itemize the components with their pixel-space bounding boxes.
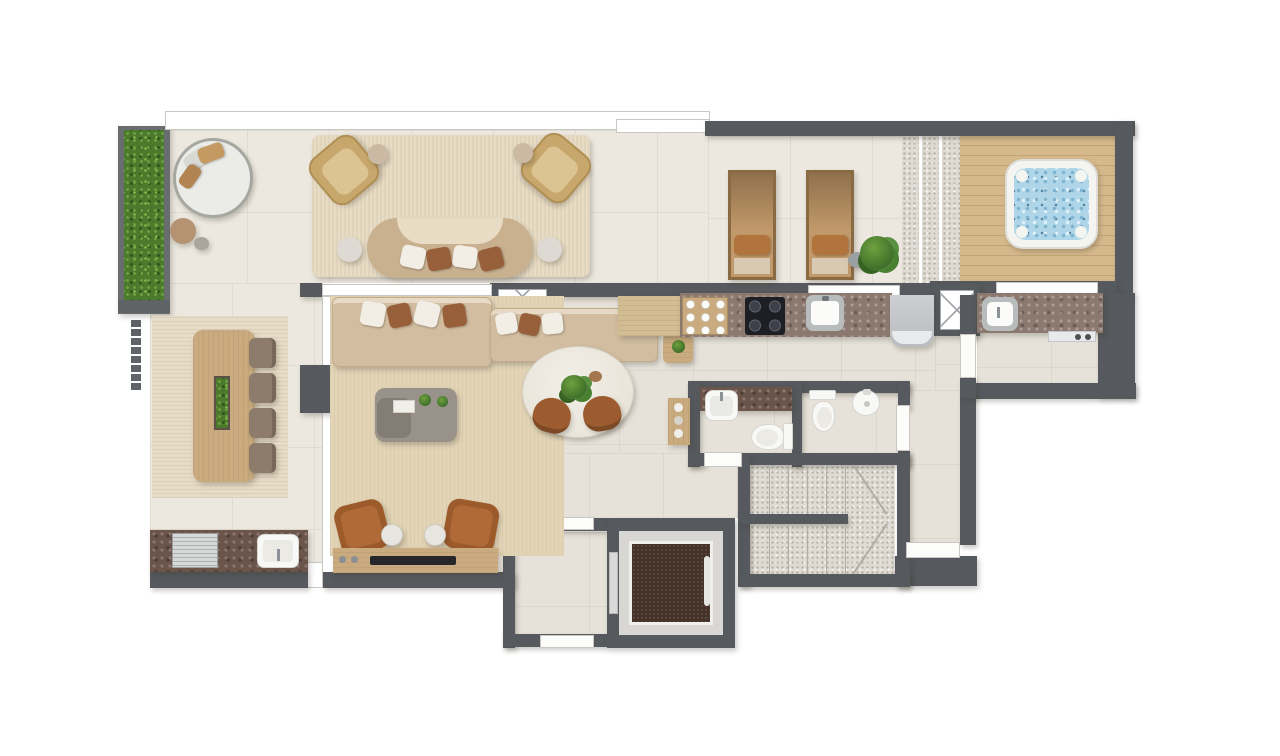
kitchen-sink-faucet — [822, 296, 829, 301]
wall-stub-left — [300, 283, 322, 297]
vanity-sink — [705, 390, 738, 421]
bidet-drain — [864, 401, 870, 407]
kitchen-sink-basin — [811, 301, 839, 325]
toilet-1-seat — [756, 429, 778, 446]
louver-mark — [131, 383, 141, 390]
sofa-pillow — [494, 311, 518, 335]
l-sofa-left — [332, 297, 492, 367]
tv-console — [333, 548, 498, 573]
wall-living-bottom — [323, 572, 515, 588]
glass-door-edge — [306, 562, 323, 588]
bidet — [852, 390, 880, 416]
round-daybed — [173, 138, 253, 218]
armchair-seat — [448, 504, 494, 548]
railing-step — [616, 119, 710, 133]
tv-screen — [370, 556, 456, 565]
jacuzzi-jet — [1016, 170, 1028, 182]
curved-sofa — [367, 218, 533, 278]
wall-stairs-mid — [738, 514, 848, 524]
green-wall-hedge — [124, 130, 164, 307]
sofa-pillow — [386, 302, 413, 329]
speaker-dot — [339, 556, 346, 563]
toilet-2-bowl — [812, 401, 835, 432]
toilet-2-seat — [817, 407, 832, 428]
green-wall-cap — [118, 300, 170, 313]
sofa-pillow — [541, 312, 564, 335]
outdoor-dining-chair — [249, 408, 276, 438]
laundry-sink-basin — [987, 302, 1013, 326]
toilet-1-tank — [783, 423, 793, 450]
jacuzzi-jet — [1075, 170, 1087, 182]
louver-mark — [131, 320, 141, 327]
outdoor-dining-chair — [249, 338, 276, 368]
wall-stairs-right — [897, 453, 910, 587]
appliance-knob — [1085, 334, 1091, 340]
sofa-pillow — [412, 299, 441, 328]
louver-mark — [131, 356, 141, 363]
outdoor-dining-chair — [249, 443, 276, 473]
fridge-front — [892, 331, 932, 344]
louver-mark — [131, 347, 141, 354]
door-vestibule-bottom — [540, 635, 594, 648]
wall-laundry-bottom — [963, 383, 1136, 399]
side-table-plant — [672, 340, 685, 353]
gravel-band — [922, 136, 939, 283]
round-side-table-1 — [381, 524, 403, 546]
lounger-backrest-shade — [731, 173, 773, 231]
louver-mark — [131, 338, 141, 345]
stairs-upper-flight — [750, 465, 850, 514]
bidet-faucet — [863, 389, 871, 395]
wall-outdoor-bottom — [150, 572, 308, 588]
wall-laundry-div-lower — [960, 376, 976, 398]
wall-stairs-bottom — [738, 574, 910, 587]
planter-greens — [216, 378, 228, 428]
round-side-table-2 — [424, 524, 446, 546]
stairs-lower-flight — [750, 524, 850, 574]
appliance-knob — [1075, 334, 1081, 340]
lounger-towel — [734, 258, 770, 274]
laundry-appliance — [1048, 331, 1096, 342]
stairs-upper-winders — [845, 465, 895, 514]
louver-mark — [131, 374, 141, 381]
sofa-pillow — [477, 245, 506, 272]
fridge — [890, 295, 934, 347]
leather-armchair-right — [441, 497, 501, 555]
shelf-jar — [674, 403, 683, 412]
sofa-pillow — [359, 300, 387, 328]
wall-left-block — [300, 365, 334, 413]
shelf-jar — [674, 416, 683, 425]
coffee-table-plant — [437, 396, 448, 407]
toilet-1-bowl — [751, 424, 784, 450]
jacuzzi-jet — [1016, 226, 1028, 238]
laundry-sink-faucet — [997, 307, 1000, 318]
louver-mark — [131, 365, 141, 372]
kitchen-cabinet — [618, 296, 680, 336]
long-dining-table — [193, 330, 255, 482]
curved-sofa-opening — [397, 218, 503, 244]
wall-stairs-top — [738, 453, 910, 465]
coffee-table-plant — [419, 394, 431, 406]
sun-lounger-1 — [728, 170, 776, 280]
armchair-seat — [339, 504, 385, 550]
bar-shelf — [668, 398, 690, 445]
cooktop — [745, 297, 785, 335]
wall-right-lower — [1098, 293, 1135, 397]
sofa-pillow — [452, 244, 479, 269]
jacuzzi — [1005, 159, 1098, 249]
coffee-table — [375, 388, 457, 442]
door-laundry — [960, 334, 976, 378]
wicker-seat — [528, 143, 582, 197]
wall-top-right — [705, 121, 1135, 136]
kitchen-sink — [806, 295, 844, 331]
stone-side-table-left — [337, 237, 362, 262]
elevator-sliding-door — [609, 552, 618, 614]
monstera-plant-deck — [860, 236, 894, 270]
outdoor-sink-faucet — [277, 549, 280, 561]
sofa-side-table — [663, 334, 693, 363]
daybed-pillow — [196, 141, 226, 165]
wall-corridor-right — [960, 395, 976, 545]
speaker-dot — [351, 556, 358, 563]
lounger-pillow — [812, 235, 848, 255]
side-table-small-right — [513, 143, 533, 163]
table-planter — [214, 376, 230, 430]
floor-plan — [0, 0, 1280, 756]
sun-lounger-2 — [806, 170, 854, 280]
gravel-band — [942, 136, 960, 283]
table-dish — [589, 371, 602, 382]
pebble-decor — [194, 237, 209, 250]
sofa-pillow — [425, 246, 452, 272]
gravel-bands — [902, 136, 960, 283]
wicker-seat — [319, 145, 373, 199]
sofa-pillow — [442, 303, 468, 329]
lounger-backrest-shade — [809, 173, 851, 231]
pouf — [170, 218, 196, 244]
coffee-station — [682, 297, 728, 335]
lounger-pillow — [734, 235, 770, 255]
coffee-table-book — [393, 400, 415, 413]
louver-mark — [131, 329, 141, 336]
door-bathroom2 — [896, 405, 910, 451]
stairs-lower-winders — [845, 524, 895, 574]
elevator-handrail — [704, 556, 710, 606]
door-hall — [906, 542, 960, 558]
side-table-small-left — [368, 144, 388, 164]
bbq-grill — [172, 533, 218, 568]
lounger-towel — [812, 258, 848, 274]
shelf-jar — [674, 429, 683, 438]
stone-side-table-right — [537, 237, 562, 262]
sofa-pillow — [399, 244, 427, 271]
wall-right — [1115, 121, 1133, 297]
outdoor-sink — [257, 534, 299, 568]
door-bathroom1 — [704, 452, 742, 467]
vanity-faucet — [720, 392, 723, 401]
glass-living-top — [322, 284, 492, 296]
wall-laundry-div-upper — [960, 295, 976, 339]
outdoor-dining-chair — [249, 373, 276, 403]
laundry-sink — [982, 297, 1018, 331]
jacuzzi-jet — [1075, 226, 1087, 238]
table-centerpiece-plant — [561, 375, 587, 399]
sofa-pillow — [517, 312, 542, 337]
elevator-carpet — [629, 541, 713, 625]
toilet-2-tank — [809, 390, 836, 400]
gravel-band — [902, 136, 919, 283]
